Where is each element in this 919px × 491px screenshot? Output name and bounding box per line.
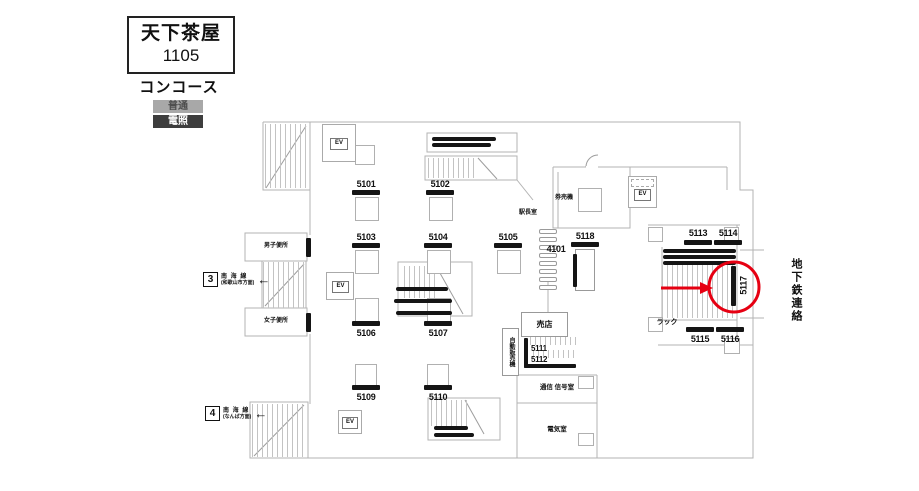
escalator-bar (432, 143, 491, 147)
stairs-top-left (265, 124, 309, 188)
ad-position-5107: 5107 (424, 329, 452, 338)
ad-bar-5109 (352, 385, 380, 390)
ad-position-5116: 5116 (716, 335, 744, 344)
ticket-machines-label: 券売機 (552, 195, 576, 202)
ad-bar-5115 (686, 327, 714, 332)
escalator-bar (663, 255, 736, 259)
ad-bar-5110 (424, 385, 452, 390)
ad-position-5104: 5104 (424, 233, 452, 242)
left-arrow-icon: ← (254, 409, 267, 419)
pillar (427, 250, 451, 274)
subway-connection-label: 地下鉄連絡 (788, 258, 804, 338)
ad-position-5105: 5105 (494, 233, 522, 242)
stairs-top-middle (428, 158, 478, 178)
legend-illuminated: 電照 (153, 115, 203, 128)
ad-bar-5105 (494, 243, 522, 248)
stair-tread-bar (394, 299, 452, 303)
station-code: 1105 (129, 45, 233, 67)
womens-restroom-label: 女子便所 (245, 318, 307, 325)
subway-passage-stairs (662, 265, 737, 318)
station-name: 天下茶屋 (129, 23, 233, 45)
elevator-label: EV (342, 417, 358, 429)
stairs-bottom-middle (431, 400, 467, 426)
ad-position-4101: 4101 (542, 245, 570, 254)
escalator-bar (663, 261, 736, 265)
kiosk-structure (575, 249, 595, 291)
stair-tread-bar (434, 433, 474, 437)
elevator-box: EV (338, 410, 362, 434)
kiosk-label: 売店 (522, 313, 567, 336)
ad-position-5112: 5112 (531, 355, 557, 364)
pillar (355, 197, 379, 221)
track-4-line: 南 海 線 (223, 408, 251, 414)
ad-position-5118: 5118 (571, 232, 599, 241)
escalator-bar (432, 137, 496, 141)
ad-bar-5114 (714, 240, 742, 245)
escalator-bar (663, 249, 736, 253)
pillar (578, 433, 594, 446)
ad-position-5110: 5110 (424, 393, 452, 402)
ad-bar-5116 (716, 327, 744, 332)
ad-bar-4101 (573, 254, 577, 287)
ad-position-5117: 5117 (740, 268, 749, 304)
track-4-direction: (なんば方面) (223, 414, 251, 420)
ad-bar-5102 (426, 190, 454, 195)
ad-position-5111: 5111 (531, 344, 557, 353)
elevator-door (631, 179, 654, 187)
door-arc (586, 155, 598, 167)
track-3-sign: 3 南 海 線 (和歌山市方面) ← (203, 272, 270, 287)
elevator-label: EV (330, 138, 348, 150)
elevator-label: EV (634, 189, 651, 201)
ad-bar-5103 (352, 243, 380, 248)
pillar (578, 188, 602, 212)
kiosk-box: 売店 (521, 312, 568, 337)
ad-bar-5112 (524, 364, 576, 368)
ad-bar-5101 (352, 190, 380, 195)
floorplan-page: 天下茶屋 1105 コンコース 普通 電照 (0, 0, 919, 491)
pillar (497, 250, 521, 274)
ad-position-5106: 5106 (352, 329, 380, 338)
pillar (355, 145, 375, 165)
legend-normal: 普通 (153, 100, 203, 113)
track-3-text: 南 海 線 (和歌山市方面) (221, 274, 254, 286)
ticket-gates (539, 229, 557, 290)
ad-position-5115: 5115 (686, 335, 714, 344)
vending-label: 自動販売機 (507, 331, 514, 373)
track-3-direction: (和歌山市方面) (221, 280, 254, 286)
station-master-label: 駅長室 (514, 210, 542, 217)
ad-position-5103: 5103 (352, 233, 380, 242)
ad-bar-5104 (424, 243, 452, 248)
vending-box: 自動販売機 (502, 328, 519, 376)
rack-label: ラック (652, 319, 682, 326)
track-4-sign: 4 南 海 線 (なんば方面) ← (205, 406, 267, 421)
ad-bar-5117 (731, 266, 736, 306)
station-title-box: 天下茶屋 1105 (127, 16, 235, 74)
comm-signal-room-label: 通信 信号室 (520, 384, 594, 391)
ad-bar-5118 (571, 242, 599, 247)
ad-position-5109: 5109 (352, 393, 380, 402)
stair-tread-bar (396, 311, 452, 315)
track-3-number: 3 (203, 272, 218, 287)
pillar (355, 250, 379, 274)
pillar (648, 227, 663, 242)
elevator-box: EV (628, 176, 657, 208)
ad-bar-5106 (352, 321, 380, 326)
electrical-room-label: 電気室 (530, 426, 584, 433)
pillar (427, 364, 449, 386)
elevator-box: EV (326, 272, 354, 300)
pillar (355, 364, 377, 386)
floor-name: コンコース (127, 76, 231, 97)
elevator-label: EV (332, 281, 349, 293)
stair-tread-bar (396, 287, 448, 291)
ad-position-5114: 5114 (714, 229, 742, 238)
pillar (355, 298, 379, 322)
track-4-number: 4 (205, 406, 220, 421)
track-4-text: 南 海 線 (なんば方面) (223, 408, 251, 420)
stair-tread-bar (434, 426, 468, 430)
pillar (429, 197, 453, 221)
ad-bar-5107 (424, 321, 452, 326)
ad-position-5102: 5102 (426, 180, 454, 189)
mens-restroom-label: 男子便所 (245, 243, 307, 250)
ad-position-5101: 5101 (352, 180, 380, 189)
elevator-box: EV (322, 124, 356, 162)
ad-position-5113: 5113 (684, 229, 712, 238)
left-arrow-icon: ← (257, 275, 270, 285)
ad-bar-5113 (684, 240, 712, 245)
